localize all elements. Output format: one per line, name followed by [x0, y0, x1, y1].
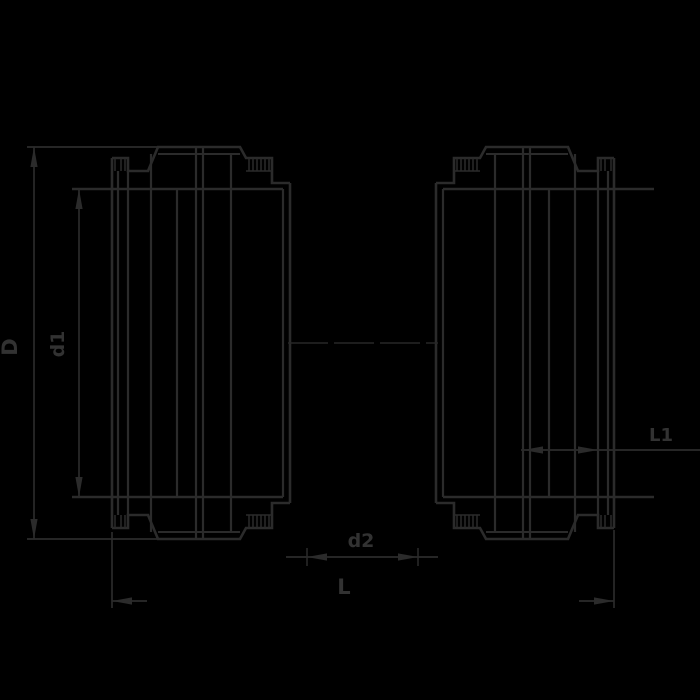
dim-bore: d2 — [286, 530, 438, 566]
technical-drawing: D d1 L1 d2 L — [0, 0, 700, 700]
label-L: L — [337, 575, 350, 599]
dim-socket-depth: L1 — [521, 425, 700, 454]
label-d1: d1 — [47, 331, 69, 358]
dim-inner-diameter: d1 — [47, 189, 83, 497]
drawing-canvas: D d1 L1 d2 L — [0, 0, 700, 700]
fitting-left — [72, 147, 290, 539]
label-L1: L1 — [649, 425, 673, 446]
label-d2: d2 — [348, 530, 375, 552]
label-D: D — [0, 338, 22, 355]
fitting-right — [436, 147, 654, 539]
